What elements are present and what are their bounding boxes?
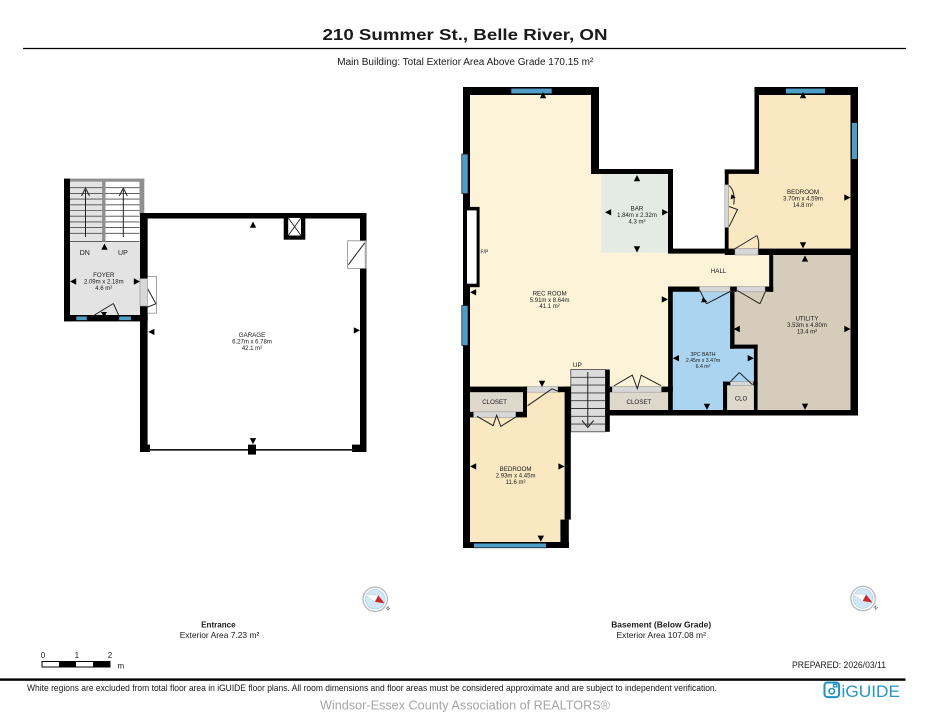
svg-text:13.4 m²: 13.4 m² [797, 330, 817, 336]
svg-text:4.6 m²: 4.6 m² [95, 286, 112, 292]
svg-text:4.3 m²: 4.3 m² [628, 220, 645, 226]
svg-text:F/P: F/P [481, 250, 489, 256]
svg-text:BAR: BAR [631, 206, 644, 213]
svg-text:41.1 m²: 41.1 m² [539, 304, 559, 310]
svg-text:CLOSET: CLOSET [627, 399, 652, 406]
svg-text:210 Summer St., Belle River, O: 210 Summer St., Belle River, ON [323, 27, 608, 44]
svg-text:m: m [118, 662, 125, 671]
svg-text:11.6 m²: 11.6 m² [506, 480, 526, 486]
svg-text:6.27m x 6.78m: 6.27m x 6.78m [232, 340, 272, 346]
svg-text:1: 1 [75, 651, 80, 660]
svg-text:DN: DN [80, 250, 90, 257]
svg-text:0: 0 [41, 651, 46, 660]
svg-text:2.09m x 2.18m: 2.09m x 2.18m [84, 280, 124, 286]
svg-text:PREPARED: 2026/03/11: PREPARED: 2026/03/11 [792, 660, 886, 670]
svg-text:HALL: HALL [711, 268, 727, 275]
svg-text:6.4 m²: 6.4 m² [696, 364, 711, 370]
svg-text:Main Building: Total Exterior: Main Building: Total Exterior Area Above… [337, 57, 594, 68]
svg-text:Basement (Below Grade): Basement (Below Grade) [611, 619, 711, 629]
svg-text:3.70m x 4.59m: 3.70m x 4.59m [783, 197, 823, 203]
svg-text:3.53m x 4.80m: 3.53m x 4.80m [787, 323, 827, 329]
svg-text:Exterior Area 107.08 m²: Exterior Area 107.08 m² [617, 630, 707, 640]
svg-text:REC ROOM: REC ROOM [533, 291, 567, 298]
svg-text:White regions are excluded fro: White regions are excluded from total fl… [27, 683, 717, 693]
svg-text:Entrance: Entrance [201, 619, 236, 629]
svg-text:Windsor-Essex County Associati: Windsor-Essex County Association of REAL… [320, 699, 611, 713]
svg-text:FOYER: FOYER [93, 272, 115, 279]
svg-text:GARAGE: GARAGE [239, 332, 265, 339]
svg-text:42.1 m²: 42.1 m² [242, 346, 262, 352]
svg-text:1.84m x 2.32m: 1.84m x 2.32m [617, 213, 657, 219]
svg-text:Exterior Area 7.23 m²: Exterior Area 7.23 m² [180, 630, 260, 640]
svg-text:UP: UP [118, 250, 128, 257]
svg-text:2: 2 [108, 651, 113, 660]
svg-text:BEDROOM: BEDROOM [500, 466, 532, 473]
svg-text:14.8 m²: 14.8 m² [793, 203, 813, 209]
svg-text:2.93m x 4.45m: 2.93m x 4.45m [496, 474, 536, 480]
svg-text:CLOSET: CLOSET [482, 399, 507, 406]
svg-text:UP: UP [573, 362, 582, 369]
svg-text:BEDROOM: BEDROOM [787, 189, 819, 196]
svg-text:iGUIDE: iGUIDE [842, 683, 901, 701]
svg-text:CLO: CLO [735, 397, 748, 403]
svg-text:UTILITY: UTILITY [795, 316, 818, 323]
